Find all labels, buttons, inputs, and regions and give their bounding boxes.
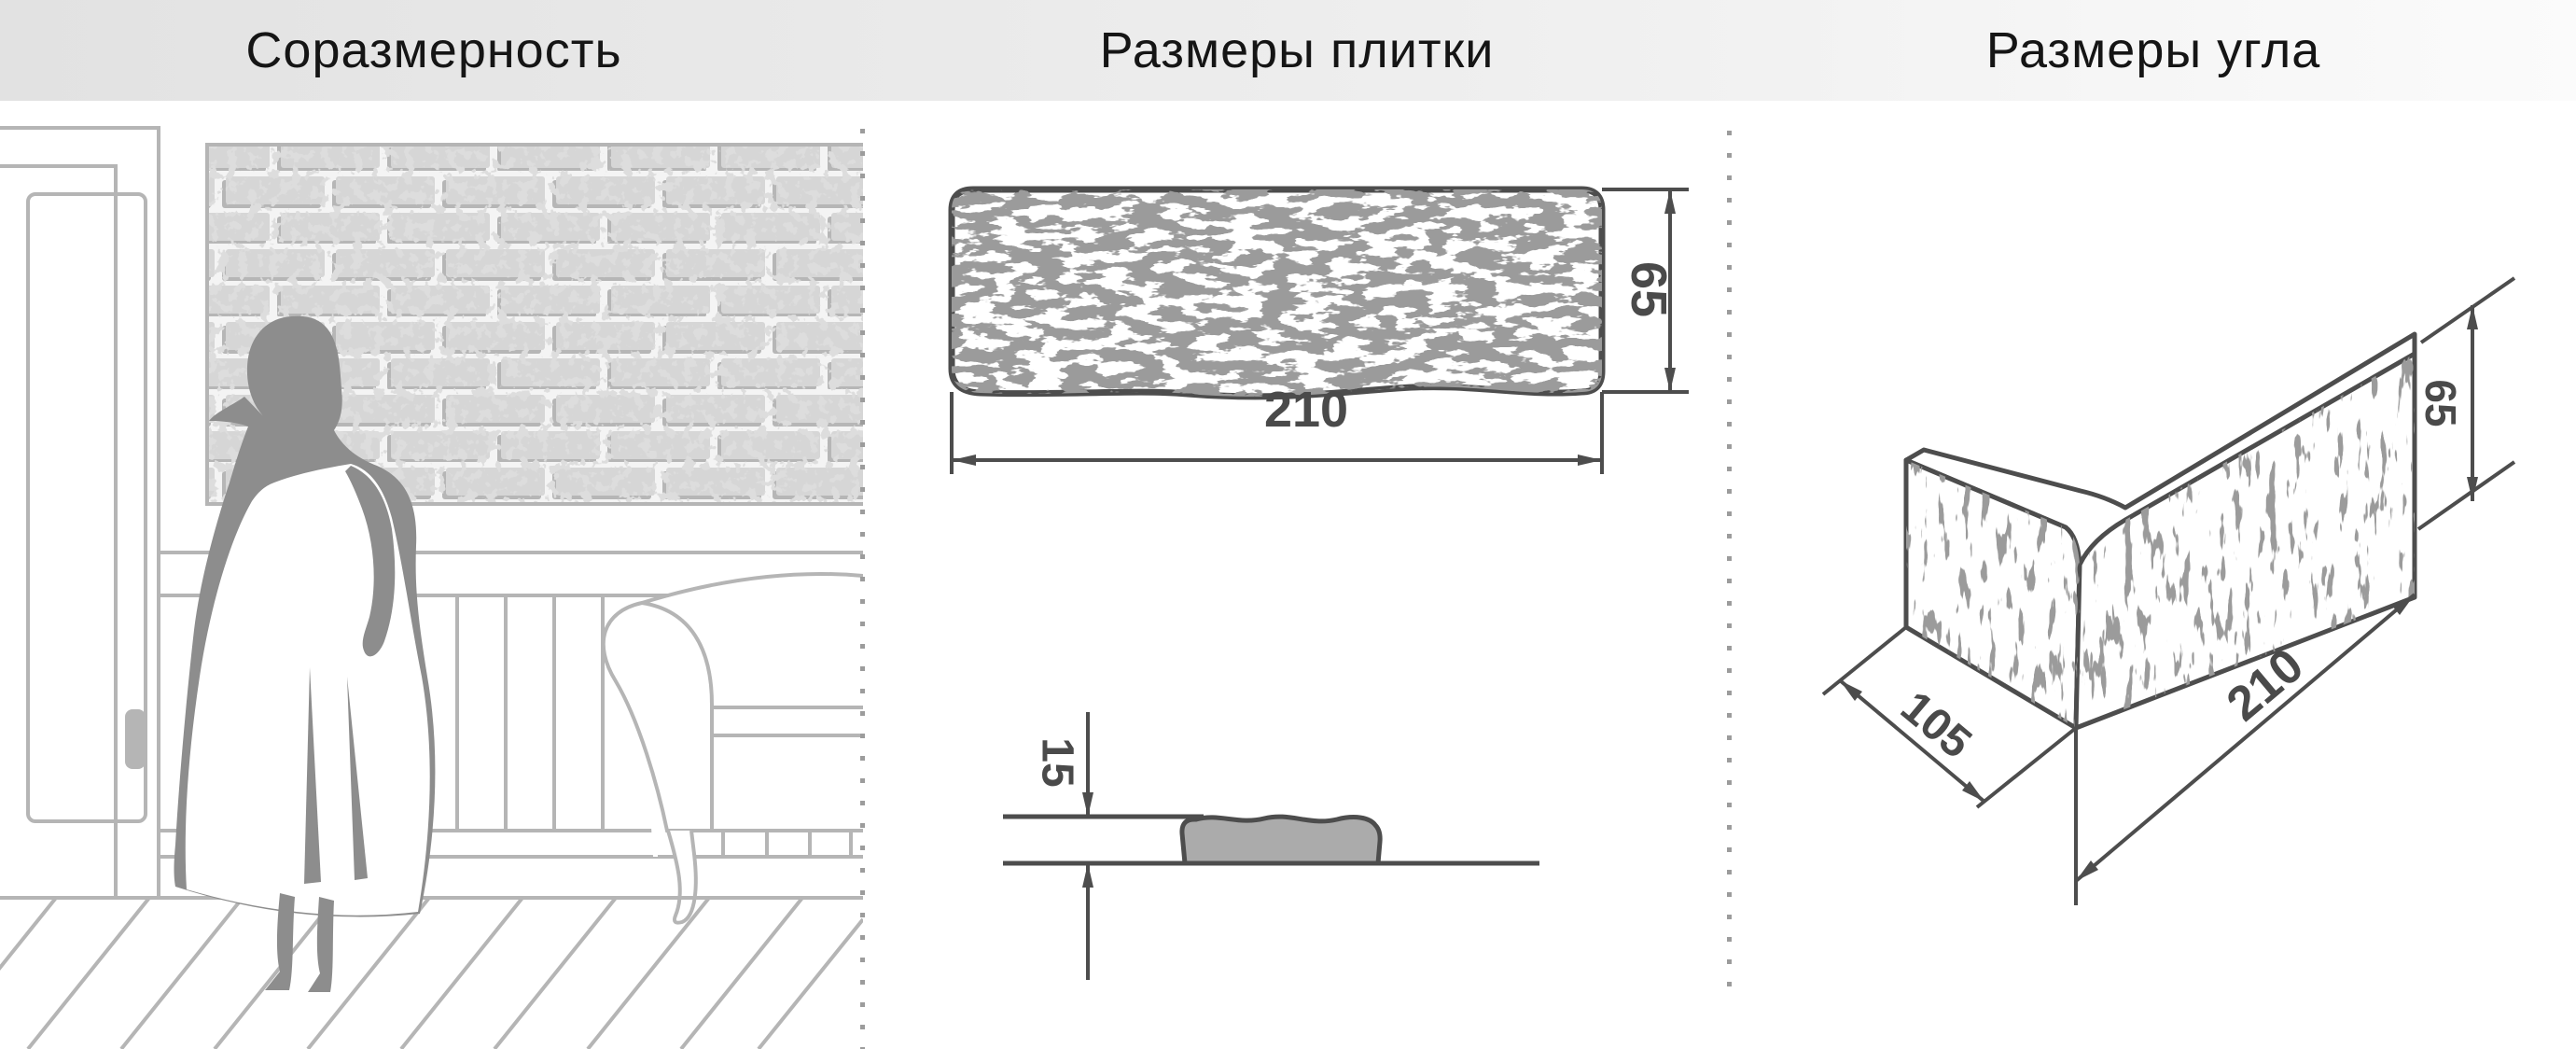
section-title-tile-dimensions: Размеры плитки [1100,21,1495,79]
section-title-proportion: Соразмерность [245,21,621,79]
interior-line-art [0,128,863,1049]
section-separator-1 [860,129,865,1049]
corner-dimensions-figure: 65 210 105 [1726,98,2576,1049]
sofa [604,574,863,923]
corner-depth-label: 105 [1891,682,1980,768]
infographic-canvas: Соразмерность Размеры плитки Размеры угл… [0,0,2576,1049]
sofa-leg [668,831,696,923]
section-title-corner-dimensions: Размеры угла [1986,21,2320,79]
tile-width-label: 210 [1264,382,1348,438]
tile-profile-view: 15 [1003,712,1539,980]
section-separator-2 [1727,131,1732,991]
door [0,128,159,899]
tile-height-label: 65 [1621,261,1677,317]
tile-profile-shape [1182,817,1380,863]
tile-thickness-label: 15 [1033,737,1082,787]
floor [0,898,863,1049]
proportion-scene [0,98,863,1049]
tile-dimensions-figure: 210 65 15 [863,98,1726,1049]
tile-front-view [952,189,1602,397]
corner-height-label: 65 [2416,379,2465,427]
door-handle [125,709,146,769]
tile-front-texture [952,189,1602,397]
header-band: Соразмерность Размеры плитки Размеры угл… [0,0,2576,101]
corner-piece [1906,334,2415,728]
